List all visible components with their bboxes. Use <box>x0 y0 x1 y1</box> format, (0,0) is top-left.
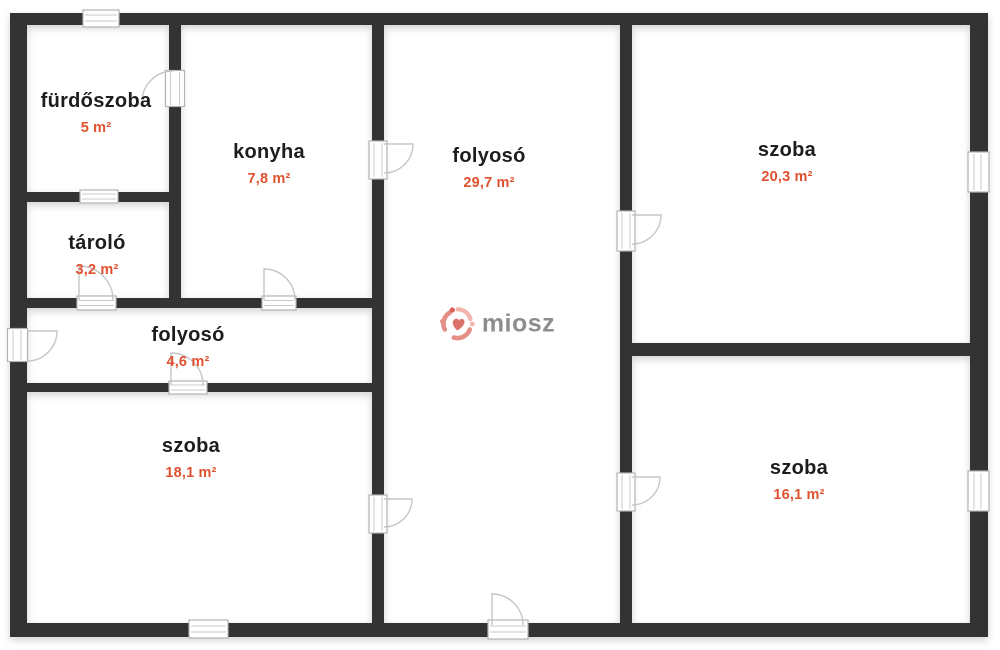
window-right-lower <box>968 471 989 511</box>
wall-outer-top <box>10 13 988 25</box>
doors <box>8 71 662 640</box>
windows <box>80 10 989 638</box>
door-bathroom <box>142 71 185 107</box>
window-bathroom-storage <box>80 190 118 203</box>
window-top <box>83 10 119 27</box>
wall-hall-rooms <box>620 25 632 623</box>
door-entrance-bottom <box>488 594 528 639</box>
door-storage <box>77 266 116 310</box>
walls <box>10 13 988 637</box>
door-hallway-room <box>169 353 207 394</box>
door-room-top <box>617 211 661 251</box>
wall-outer-left <box>10 13 27 637</box>
door-room-bottom <box>617 473 660 511</box>
door-room-hall <box>369 495 412 533</box>
wall-outer-right <box>970 13 988 637</box>
wall-room-room <box>620 343 970 356</box>
window-right-upper <box>968 152 989 192</box>
door-kitchen <box>262 269 296 310</box>
floor-plan: fürdőszoba 5 m² konyha 7,8 m² tároló 3,2… <box>0 0 1000 650</box>
wall-bathroom-kitchen <box>169 25 181 308</box>
window-bottom <box>189 620 228 638</box>
door-entrance-left <box>8 329 58 362</box>
floor-plan-drawing <box>0 0 1000 650</box>
door-kitchen-hall <box>369 141 413 179</box>
door-gaps <box>10 70 632 637</box>
